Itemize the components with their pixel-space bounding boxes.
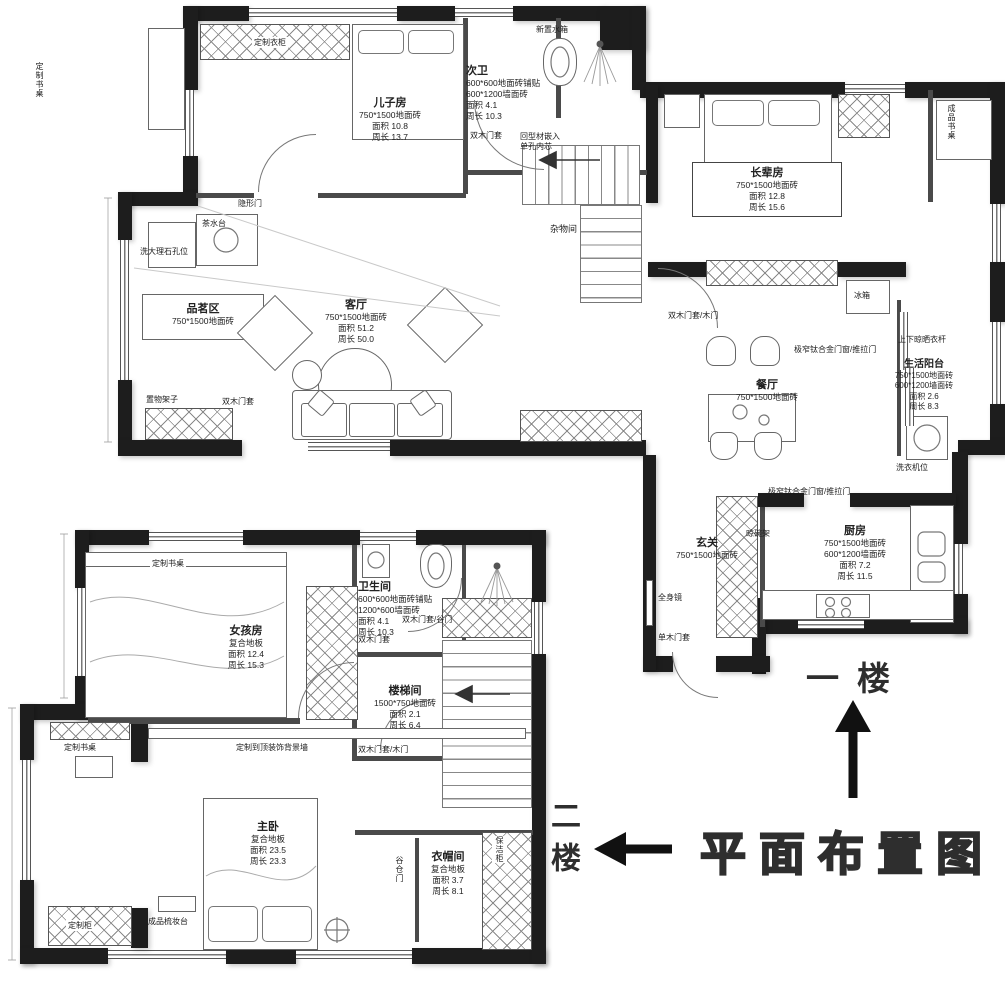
window xyxy=(249,8,397,17)
wall-segment xyxy=(390,440,646,456)
annotation-stair-door: 双木门套/木门 xyxy=(358,744,408,755)
room-name: 衣帽间 xyxy=(404,850,492,864)
room-area: 面积 10.8 xyxy=(320,121,460,132)
wall-segment xyxy=(838,262,906,277)
pillow xyxy=(408,30,454,54)
second-floor-label: 二楼 xyxy=(540,800,584,930)
room-label-living: 客厅 750*1500地面砖 面积 51.2 周长 50.0 xyxy=(295,298,417,345)
pillow xyxy=(262,906,312,942)
wall-segment xyxy=(183,6,198,90)
annotation-custom-wardrobe: 定制衣柜 xyxy=(252,37,288,48)
door-swing xyxy=(258,134,316,192)
room-label-bathroom: 卫生间 600*600地面砖铺贴 1200*600墙面砖 面积 4.1 周长 1… xyxy=(358,580,470,638)
annotation-cistern: 新置水箱 xyxy=(536,24,568,35)
wall-segment xyxy=(20,948,108,964)
wall-segment xyxy=(243,530,360,545)
room-spec: 复合地板 xyxy=(222,834,314,845)
room-name: 厨房 xyxy=(790,524,920,538)
staircase-first-floor xyxy=(580,205,642,303)
room-perimeter: 周长 15.6 xyxy=(701,202,833,213)
room-spec: 750*1500地面砖 xyxy=(320,110,460,121)
room-name: 女孩房 xyxy=(196,624,296,638)
wall-segment xyxy=(532,530,546,602)
room-label-second-bath: 次卫 600*600地面砖铺贴 600*1200墙面砖 面积 4.1 周长 10… xyxy=(466,64,586,122)
tv-cabinet xyxy=(520,410,642,442)
room-label-tea-area: 品茗区 750*1500地面砖 xyxy=(144,302,262,327)
room-name: 玄关 xyxy=(652,536,762,550)
window xyxy=(992,204,1001,262)
room-spec: 600*600地面砖铺贴 xyxy=(358,594,470,605)
annotation-bath-casing: 双木门套 xyxy=(470,130,502,141)
desk-cabinet xyxy=(50,722,130,740)
room-area: 面积 3.7 xyxy=(404,875,492,886)
room-area: 面积 2.6 xyxy=(866,392,982,402)
room-area: 面积 4.1 xyxy=(358,616,470,627)
room-spec: 1500*750地面砖 xyxy=(350,698,460,709)
wall-segment xyxy=(131,908,148,948)
annotation-kitchen-door: 极窄钛合金门窗/推拉门 xyxy=(768,486,850,497)
nightstand xyxy=(664,94,700,128)
pillow xyxy=(358,30,404,54)
room-perimeter: 周长 8.1 xyxy=(404,886,492,897)
wall-segment xyxy=(646,85,658,203)
window xyxy=(185,90,194,156)
wall-segment xyxy=(20,704,34,760)
window xyxy=(108,950,226,959)
room-label-master: 主卧 复合地板 面积 23.5 周长 23.3 xyxy=(222,820,314,867)
room-area: 面积 7.2 xyxy=(790,560,920,571)
room-name: 生活阳台 xyxy=(866,358,982,371)
wall-segment xyxy=(990,262,1005,322)
side-table xyxy=(292,360,322,390)
room-perimeter: 周长 6.4 xyxy=(350,720,460,731)
room-perimeter: 周长 15.3 xyxy=(196,660,296,671)
annotation-fridge: 冰箱 xyxy=(854,290,870,301)
room-perimeter: 周长 10.3 xyxy=(466,111,586,122)
room-label-elder-room: 长辈房 750*1500地面砖 面积 12.8 周长 15.6 xyxy=(692,162,842,217)
wall-segment xyxy=(131,720,148,762)
pillow xyxy=(712,100,764,126)
window xyxy=(149,532,243,541)
partition-wall xyxy=(928,90,933,202)
first-floor-arrow-icon xyxy=(835,700,871,798)
annotation-hidden-door: 隐形门 xyxy=(238,198,262,209)
cooktop xyxy=(816,594,870,618)
dresser xyxy=(158,896,196,912)
room-spec: 750*1500地面砖 xyxy=(701,180,833,191)
wall-segment xyxy=(990,82,1005,204)
annotation-living-casing: 双木门套 xyxy=(222,396,254,407)
annotation-custom-desk: 定制书桌 xyxy=(34,62,45,98)
page-title: 平面布置图 xyxy=(700,818,995,884)
annotation-girl-desk: 定制书桌 xyxy=(150,558,186,569)
annotation-drying-rod: 上下晾晒衣杆 xyxy=(898,334,946,345)
wall-segment xyxy=(397,6,455,21)
dining-chair xyxy=(710,432,738,460)
sink xyxy=(362,544,390,578)
annotation-custom-cabinet: 定制柜 xyxy=(66,920,94,931)
sofa xyxy=(292,390,452,440)
window xyxy=(308,442,390,451)
room-area: 面积 12.8 xyxy=(701,191,833,202)
wall-segment xyxy=(118,192,132,240)
wall-segment xyxy=(716,656,770,672)
room-area: 面积 23.5 xyxy=(222,845,314,856)
annotation-marble-hole: 洗大理石孔位 xyxy=(140,246,188,257)
room-name: 品茗区 xyxy=(144,302,262,316)
wall-segment xyxy=(118,440,242,456)
wall-segment xyxy=(412,948,546,964)
desk-chair xyxy=(75,756,113,778)
storage-shelf xyxy=(145,408,233,440)
room-label-closet: 衣帽间 复合地板 面积 3.7 周长 8.1 xyxy=(404,850,492,897)
room-name: 楼梯间 xyxy=(350,684,460,698)
annotation-master-desk: 定制书桌 xyxy=(62,742,98,753)
room-spec: 复合地板 xyxy=(196,638,296,649)
room-spec: 600*1200墙面砖 xyxy=(866,381,982,391)
wall-segment xyxy=(632,6,646,90)
annotation-balcony-door: 极窄钛合金门窗/推拉门 xyxy=(794,344,876,355)
room-label-dining: 餐厅 750*1500地面砖 xyxy=(712,378,822,403)
room-spec: 750*1500地面砖 xyxy=(790,538,920,549)
room-area: 面积 2.1 xyxy=(350,709,460,720)
wall-segment xyxy=(226,948,296,964)
sofa-cushion xyxy=(349,403,395,437)
floor-plan-canvas: 杂物间 定制衣柜 定制书桌 隐形门 新置水箱 双木门套 回型材嵌入 单孔内芯 茶… xyxy=(0,0,1005,988)
dining-chair xyxy=(750,336,780,366)
room-perimeter: 周长 10.3 xyxy=(358,627,470,638)
room-spec: 750*1500地面砖 xyxy=(652,550,762,561)
desk xyxy=(936,100,992,160)
room-label-kitchen: 厨房 750*1500地面砖 600*1200墙面砖 面积 7.2 周长 11.… xyxy=(790,524,920,582)
first-floor-label: 一楼 xyxy=(806,652,908,700)
pillow xyxy=(768,100,820,126)
room-label-entry: 玄关 750*1500地面砖 xyxy=(652,536,762,561)
room-spec: 750*1500地面砖 xyxy=(712,392,822,403)
full-mirror xyxy=(646,580,653,626)
annotation-finished-desk: 成品书桌 xyxy=(946,104,957,140)
dining-chair xyxy=(754,432,782,460)
room-area: 面积 51.2 xyxy=(295,323,417,334)
dining-chair xyxy=(706,336,736,366)
room-spec: 1200*600墙面砖 xyxy=(358,605,470,616)
window xyxy=(845,84,905,93)
annotation-shelf: 置物架子 xyxy=(146,394,178,405)
shoe-cabinet xyxy=(716,496,758,638)
desk xyxy=(148,28,185,130)
window xyxy=(455,8,513,17)
room-spec: 750*1500地面砖 xyxy=(866,371,982,381)
room-perimeter: 周长 23.3 xyxy=(222,856,314,867)
room-name: 餐厅 xyxy=(712,378,822,392)
room-name: 客厅 xyxy=(295,298,417,312)
pillow xyxy=(208,906,258,942)
room-spec: 600*600地面砖铺贴 xyxy=(466,78,586,89)
annotation-elder-door: 双木门套/木门 xyxy=(668,310,718,321)
second-floor-arrow-icon xyxy=(594,832,672,866)
room-name: 儿子房 xyxy=(320,96,460,110)
room-name: 次卫 xyxy=(466,64,586,78)
wall-segment xyxy=(416,530,546,545)
window xyxy=(22,760,31,880)
room-perimeter: 周长 11.5 xyxy=(790,571,920,582)
partition-wall xyxy=(318,193,466,198)
room-spec: 600*1200墙面砖 xyxy=(466,89,586,100)
window xyxy=(120,240,129,380)
room-area: 面积 12.4 xyxy=(196,649,296,660)
room-perimeter: 周长 50.0 xyxy=(295,334,417,345)
closet-cabinet xyxy=(838,94,890,138)
annotation-single-casing: 单木门套 xyxy=(658,632,690,643)
room-spec: 600*1200墙面砖 xyxy=(790,549,920,560)
annotation-dresser: 成品梳妆台 xyxy=(148,916,188,927)
wall-segment xyxy=(643,455,656,670)
window xyxy=(360,532,416,541)
window xyxy=(992,322,1001,404)
room-perimeter: 周长 8.3 xyxy=(866,402,982,412)
room-name: 主卧 xyxy=(222,820,314,834)
entry-door-swing xyxy=(672,652,718,698)
annotation-sundry-room: 杂物间 xyxy=(550,222,577,235)
wall-segment xyxy=(118,380,132,444)
room-name: 卫生间 xyxy=(358,580,470,594)
cabinet-row xyxy=(706,260,838,286)
room-spec: 750*1500地面砖 xyxy=(295,312,417,323)
room-label-girl-room: 女孩房 复合地板 面积 12.4 周长 15.3 xyxy=(196,624,296,671)
room-area: 面积 4.1 xyxy=(466,100,586,111)
window xyxy=(296,950,412,959)
annotation-tea-counter: 茶水台 xyxy=(202,218,226,229)
room-label-stairwell: 楼梯间 1500*750地面砖 面积 2.1 周长 6.4 xyxy=(350,684,460,731)
annotation-full-mirror: 全身镜 xyxy=(658,592,682,603)
marble-counter xyxy=(148,222,196,268)
annotation-bg-wall: 定制到顶装饰背景墙 xyxy=(236,742,308,753)
room-spec: 复合地板 xyxy=(404,864,492,875)
window xyxy=(954,544,963,594)
room-label-balcony: 生活阳台 750*1500地面砖 600*1200墙面砖 面积 2.6 周长 8… xyxy=(866,358,982,413)
room-name: 长辈房 xyxy=(701,166,833,180)
background-wall-strip xyxy=(148,728,526,739)
annotation-washer: 洗衣机位 xyxy=(896,462,928,473)
room-label-son-room: 儿子房 750*1500地面砖 面积 10.8 周长 13.7 xyxy=(320,96,460,143)
room-perimeter: 周长 13.7 xyxy=(320,132,460,143)
room-spec: 750*1500地面砖 xyxy=(144,316,262,327)
window xyxy=(534,602,543,654)
lounge-chair xyxy=(407,287,483,363)
window xyxy=(798,620,864,629)
partition-wall xyxy=(352,756,444,761)
annotation-profile-core: 单孔内芯 xyxy=(520,141,552,152)
annotation-cleaning-cabinet: 保洁柜 xyxy=(492,836,507,863)
